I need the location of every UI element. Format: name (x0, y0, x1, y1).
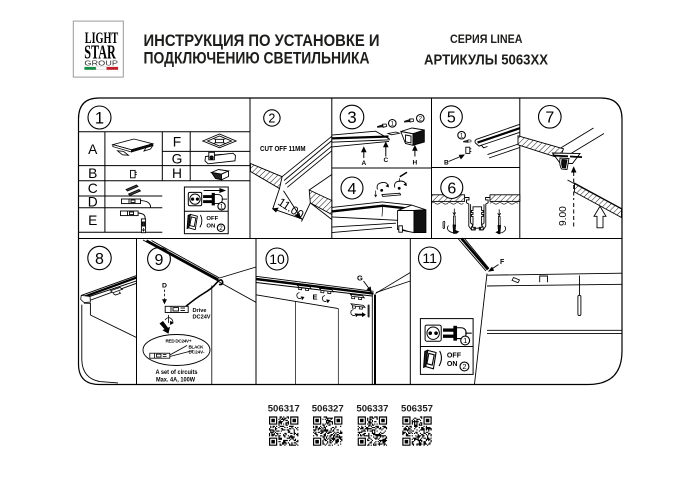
svg-text:H: H (172, 166, 182, 181)
svg-text:506327: 506327 (312, 404, 344, 415)
svg-text:506337: 506337 (356, 404, 388, 415)
svg-text:Max. 4A, 100W: Max. 4A, 100W (156, 377, 196, 384)
svg-text:506317: 506317 (268, 404, 300, 415)
svg-text:506357: 506357 (401, 404, 433, 415)
svg-text:11: 11 (422, 250, 437, 266)
svg-text:10: 10 (269, 251, 285, 267)
svg-text:9.00: 9.00 (558, 206, 569, 226)
svg-text:DC24V-: DC24V- (189, 349, 205, 354)
svg-text:A set of circuits: A set of circuits (156, 369, 198, 376)
svg-text:5: 5 (447, 110, 456, 127)
svg-text:2: 2 (462, 362, 466, 371)
svg-text:G: G (357, 273, 363, 282)
svg-text:G: G (172, 151, 183, 166)
svg-text:C: C (383, 157, 388, 164)
svg-text:E: E (88, 213, 97, 228)
svg-text:Drive: Drive (193, 308, 207, 314)
svg-text:D: D (162, 283, 167, 290)
svg-text:GROUP: GROUP (84, 59, 118, 68)
svg-text:2: 2 (219, 225, 223, 232)
svg-text:B: B (88, 166, 97, 181)
svg-text:ON: ON (447, 360, 458, 368)
svg-text:F: F (500, 259, 505, 266)
svg-text:OFF: OFF (206, 216, 218, 222)
svg-text:DC24V: DC24V (193, 315, 211, 321)
svg-text:1: 1 (460, 132, 464, 139)
svg-text:7: 7 (545, 110, 554, 127)
svg-text:6: 6 (447, 180, 456, 197)
svg-text:1: 1 (95, 109, 104, 127)
svg-text:ПОДКЛЮЧЕНИЮ СВЕТИЛЬНИКА: ПОДКЛЮЧЕНИЮ СВЕТИЛЬНИКА (144, 50, 370, 68)
svg-text:CUT OFF 11MM: CUT OFF 11MM (260, 144, 306, 153)
svg-text:1: 1 (391, 121, 395, 128)
svg-text:9: 9 (155, 252, 164, 269)
svg-text:2: 2 (419, 116, 423, 123)
svg-text:ON: ON (206, 224, 215, 230)
svg-text:СЕРИЯ LINEA: СЕРИЯ LINEA (450, 34, 523, 46)
svg-text:A: A (88, 142, 98, 157)
svg-text:3: 3 (347, 108, 356, 127)
svg-text:АРТИКУЛЫ 5063ХХ: АРТИКУЛЫ 5063ХХ (424, 52, 548, 69)
svg-text:4: 4 (348, 181, 357, 198)
svg-text:ИНСТРУКЦИЯ ПО УСТАНОВКЕ И: ИНСТРУКЦИЯ ПО УСТАНОВКЕ И (144, 32, 380, 50)
svg-text:D: D (88, 195, 98, 210)
svg-text:OFF: OFF (447, 351, 462, 359)
svg-text:8: 8 (95, 251, 104, 268)
svg-text:B: B (444, 159, 449, 166)
svg-text:H: H (413, 160, 418, 167)
svg-text:RED DC24V+: RED DC24V+ (166, 338, 192, 343)
svg-text:1: 1 (463, 336, 467, 345)
svg-text:1: 1 (220, 203, 224, 210)
svg-text:E: E (313, 293, 318, 302)
svg-text:F: F (173, 134, 181, 149)
svg-text:2: 2 (268, 112, 275, 126)
svg-text:A: A (361, 160, 366, 167)
